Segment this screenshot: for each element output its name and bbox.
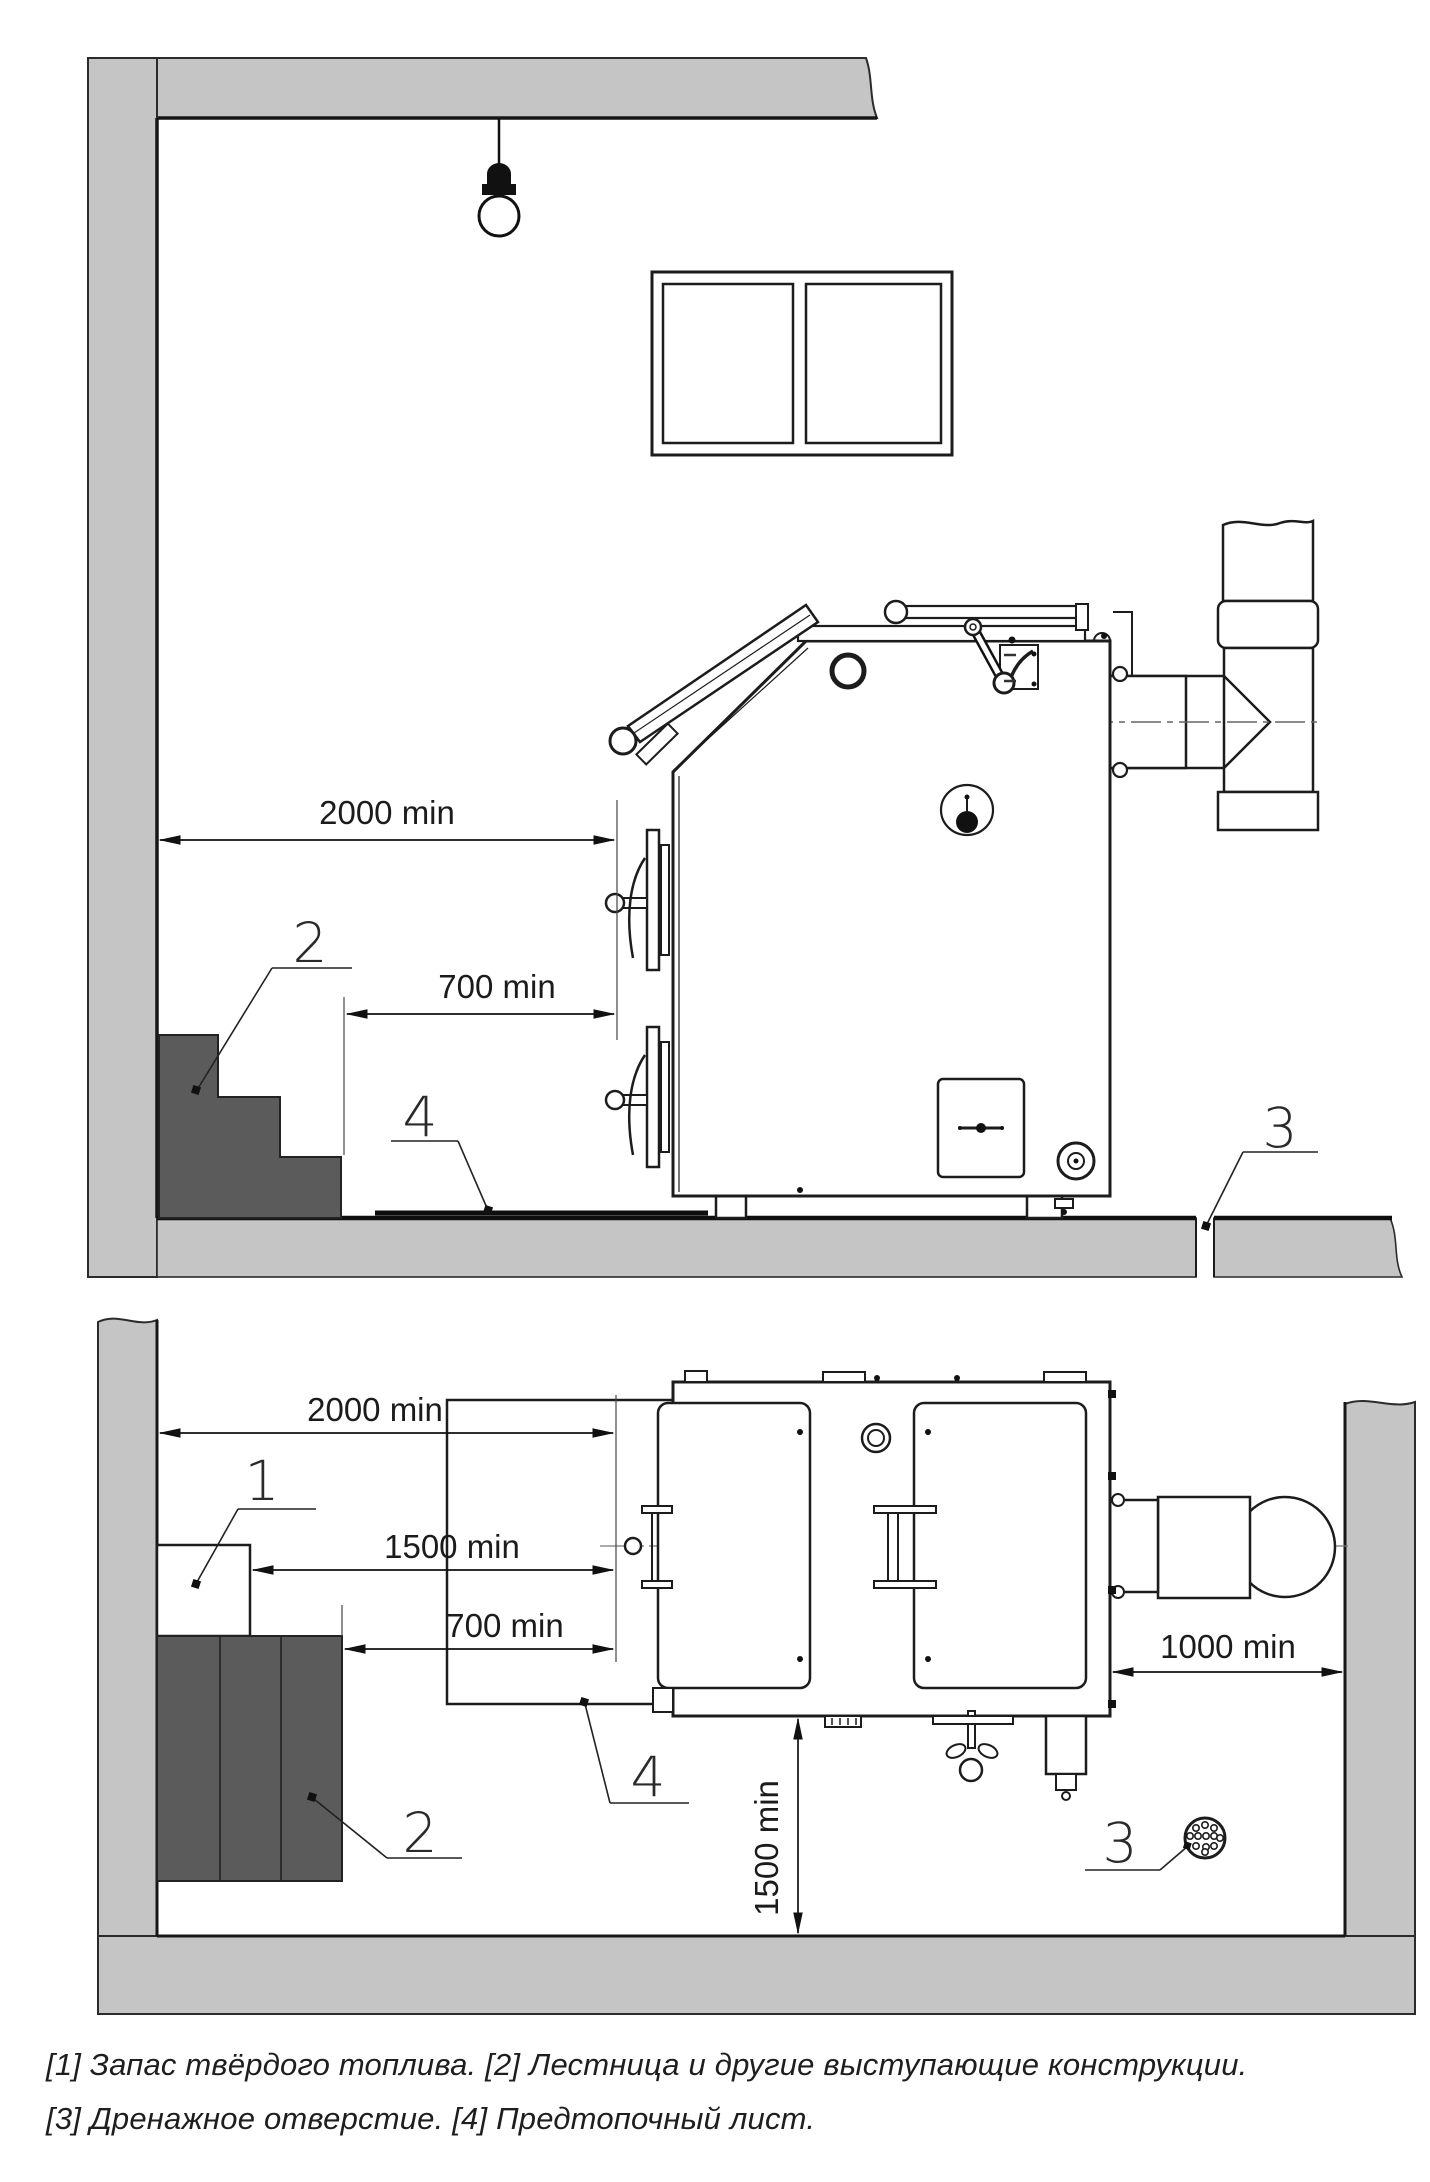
- stairs: [159, 1035, 341, 1218]
- svg-text:4: 4: [403, 1085, 438, 1149]
- dim-label-2000-plan: 2000 min: [307, 1391, 443, 1428]
- boiler-body: [673, 641, 1110, 1196]
- svg-text:3: 3: [1263, 1096, 1298, 1160]
- legend-line-1: [1] Запас твёрдого топлива. [2] Лестница…: [46, 2038, 1416, 2092]
- plan-view: 2000 min 1500 min 700 min 1000 min 1500 …: [98, 1319, 1415, 2014]
- callout-drain-side: 3: [1201, 1096, 1318, 1231]
- floor-right: [1214, 1218, 1402, 1277]
- top-plate: [798, 626, 1085, 641]
- dim-label-700-plan: 700 min: [446, 1607, 563, 1644]
- access-panel: [938, 1079, 1024, 1177]
- light-bulb-icon: [479, 118, 519, 236]
- svg-text:2: 2: [403, 1801, 438, 1865]
- door-hardware-lower: [606, 1027, 669, 1167]
- drawing-canvas: 2000 min 700 min 2 4 3: [0, 0, 1430, 2182]
- dim-label-700-side: 700 min: [438, 968, 555, 1005]
- plan-bottom-wall: [98, 1936, 1415, 2014]
- left-door-plan: [658, 1403, 810, 1688]
- dim-ladder-to-boiler-plan: 700 min: [342, 1605, 613, 1649]
- plan-right-wall: [1345, 1401, 1415, 1936]
- dim-front-clearance-plan: 1500 min: [748, 1719, 798, 1933]
- left-wall: [88, 58, 157, 1277]
- bottom-fittings: [825, 1711, 1086, 1800]
- door-hardware-upper: [606, 830, 669, 970]
- draft-rod: [905, 606, 1078, 618]
- legend: [1] Запас твёрдого топлива. [2] Лестница…: [46, 2038, 1416, 2146]
- blower-fan: [1110, 1494, 1335, 1598]
- boiler-side: [606, 521, 1322, 1218]
- thermometer: [941, 785, 993, 835]
- dim-label-1500-vert: 1500 min: [748, 1780, 785, 1916]
- fuel-storage: [157, 1545, 250, 1636]
- dim-label-1500-plan: 1500 min: [384, 1528, 520, 1565]
- svg-text:2: 2: [293, 911, 328, 975]
- ceiling: [88, 58, 877, 118]
- ladder: [157, 1636, 342, 1881]
- dim-label-1000-plan: 1000 min: [1160, 1628, 1296, 1665]
- window: [652, 272, 952, 455]
- dim-fuel-to-boiler-plan: 1500 min: [253, 1528, 613, 1570]
- callout-sheet-side: 4: [391, 1085, 493, 1215]
- right-door-plan: [914, 1403, 1086, 1688]
- plan-left-wall: [98, 1319, 157, 1936]
- drain-hole: [1185, 1818, 1225, 1858]
- floor-left: [157, 1218, 1196, 1277]
- boiler-plan: [625, 1371, 1116, 1800]
- callout-drain-plan: 3: [1085, 1811, 1192, 1875]
- dim-label-2000-side: 2000 min: [319, 794, 455, 831]
- legend-line-2: [3] Дренажное отверстие. [4] Предтопочны…: [46, 2092, 1416, 2146]
- installation-clearance-drawing: 2000 min 700 min 2 4 3: [0, 0, 1430, 2182]
- svg-text:1: 1: [245, 1449, 280, 1513]
- drain-valve: [1058, 1143, 1094, 1179]
- svg-text:4: 4: [631, 1745, 666, 1809]
- svg-text:3: 3: [1103, 1811, 1138, 1875]
- dim-boiler-to-wall-plan: 1000 min: [1113, 1628, 1342, 1672]
- side-view: 2000 min 700 min 2 4 3: [88, 58, 1402, 1277]
- dim-stairs-to-boiler-side: 700 min: [344, 968, 614, 1155]
